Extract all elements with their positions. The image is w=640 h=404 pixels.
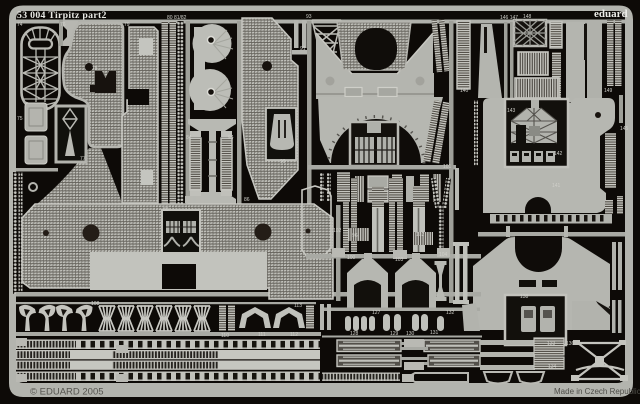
svg-text:90: 90 [280, 159, 286, 165]
svg-text:108: 108 [91, 301, 100, 307]
svg-text:110: 110 [221, 333, 229, 339]
svg-text:130: 130 [406, 331, 415, 337]
svg-text:134: 134 [548, 364, 557, 370]
svg-text:136: 136 [566, 341, 575, 347]
svg-text:78: 78 [92, 66, 98, 72]
svg-text:80: 80 [163, 207, 169, 213]
svg-text:74: 74 [17, 22, 23, 28]
svg-text:eduard: eduard [594, 8, 628, 20]
svg-text:111: 111 [258, 332, 266, 338]
svg-text:102: 102 [416, 232, 425, 238]
svg-text:131: 131 [430, 330, 439, 336]
svg-text:79: 79 [124, 22, 130, 28]
svg-text:104: 104 [439, 252, 448, 258]
svg-text:127: 127 [372, 310, 381, 316]
svg-text:94: 94 [228, 135, 234, 141]
svg-text:Made in Czech Republic: Made in Czech Republic [554, 387, 640, 396]
svg-text:75: 75 [17, 116, 23, 122]
svg-text:77: 77 [80, 156, 86, 162]
svg-text:133: 133 [547, 341, 556, 347]
svg-text:142: 142 [554, 151, 563, 157]
svg-text:146 147: 146 147 [500, 15, 518, 21]
svg-text:143: 143 [507, 108, 516, 114]
svg-text:96: 96 [352, 233, 358, 239]
svg-text:103: 103 [395, 257, 404, 263]
svg-text:84: 84 [186, 135, 192, 141]
svg-text:53 004 Tirpitz part2: 53 004 Tirpitz part2 [17, 10, 107, 21]
svg-text:86: 86 [244, 197, 250, 203]
svg-text:113: 113 [294, 303, 302, 309]
svg-text:100: 100 [347, 255, 356, 261]
svg-text:149: 149 [604, 88, 613, 94]
svg-text:138: 138 [520, 294, 529, 300]
svg-text:80 81/82: 80 81/82 [167, 15, 187, 21]
svg-text:141: 141 [552, 183, 561, 189]
svg-text:101: 101 [443, 164, 452, 170]
svg-text:© EDUARD 2005: © EDUARD 2005 [30, 387, 104, 398]
svg-text:76: 76 [60, 22, 66, 28]
svg-text:128: 128 [350, 331, 359, 337]
svg-text:93: 93 [306, 14, 312, 20]
svg-text:145: 145 [620, 126, 629, 132]
svg-text:102: 102 [333, 228, 342, 234]
svg-text:140: 140 [460, 88, 469, 94]
svg-text:112: 112 [290, 332, 298, 338]
svg-text:129: 129 [390, 331, 399, 337]
svg-text:132: 132 [446, 310, 455, 316]
svg-text:148: 148 [523, 14, 532, 20]
svg-text:91: 91 [300, 46, 306, 52]
